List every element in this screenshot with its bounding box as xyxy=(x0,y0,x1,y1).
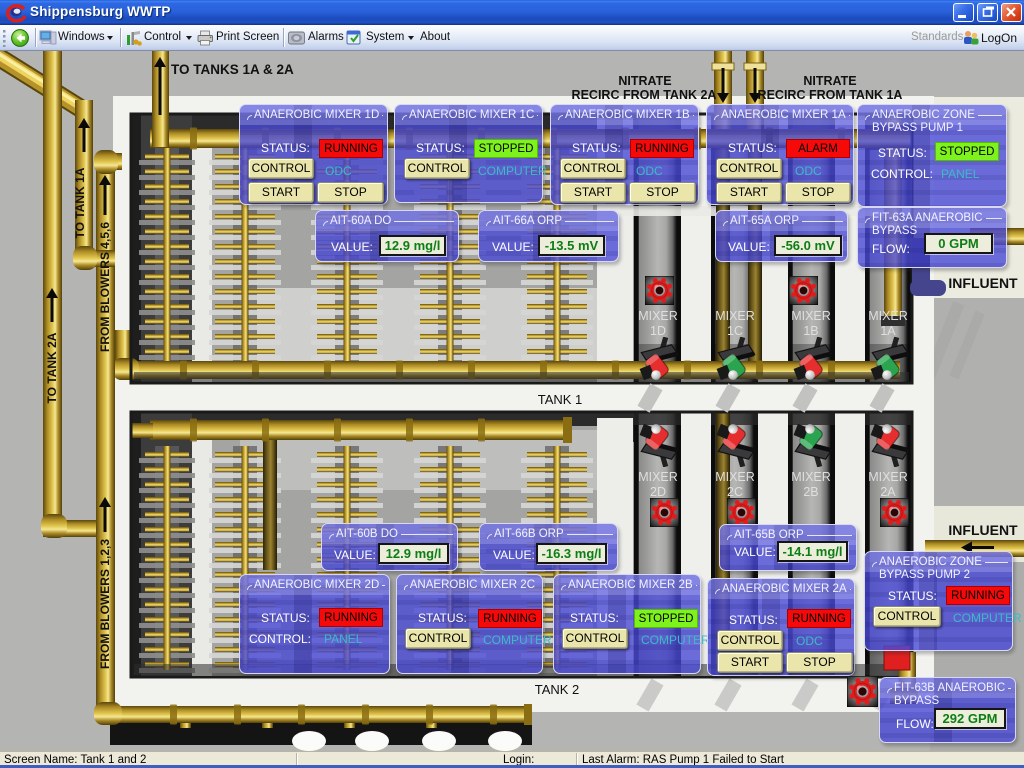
svg-text:MIXER: MIXER xyxy=(791,470,831,484)
svg-text:INFLUENT: INFLUENT xyxy=(948,522,1018,538)
svg-text:MIXER: MIXER xyxy=(715,309,755,323)
svg-text:1B: 1B xyxy=(803,324,818,338)
svg-text:TO TANK 1A: TO TANK 1A xyxy=(73,167,87,238)
svg-text:MIXER: MIXER xyxy=(868,309,908,323)
svg-text:MIXER: MIXER xyxy=(638,470,678,484)
svg-text:2D: 2D xyxy=(650,485,666,499)
svg-text:TANK 2: TANK 2 xyxy=(535,682,580,697)
svg-text:2A: 2A xyxy=(880,485,896,499)
svg-text:MIXER: MIXER xyxy=(868,470,908,484)
svg-text:NITRATE: NITRATE xyxy=(618,74,671,88)
svg-text:FROM BLOWERS 1,2,3: FROM BLOWERS 1,2,3 xyxy=(98,539,112,669)
svg-text:FROM BLOWERS 4,5,6: FROM BLOWERS 4,5,6 xyxy=(98,222,112,352)
svg-text:INFLUENT: INFLUENT xyxy=(948,275,1018,291)
svg-text:TO TANKS 1A & 2A: TO TANKS 1A & 2A xyxy=(171,62,294,77)
svg-text:RECIRC FROM TANK 1A: RECIRC FROM TANK 1A xyxy=(758,88,903,102)
svg-text:NITRATE: NITRATE xyxy=(803,74,856,88)
svg-text:2C: 2C xyxy=(727,485,743,499)
svg-text:MIXER: MIXER xyxy=(715,470,755,484)
svg-text:RECIRC FROM TANK 2A: RECIRC FROM TANK 2A xyxy=(572,88,717,102)
svg-text:1C: 1C xyxy=(727,324,743,338)
svg-text:TANK 1: TANK 1 xyxy=(538,392,583,407)
svg-text:MIXER: MIXER xyxy=(638,309,678,323)
svg-text:2B: 2B xyxy=(803,485,818,499)
svg-text:1A: 1A xyxy=(880,324,896,338)
svg-text:MIXER: MIXER xyxy=(791,309,831,323)
svg-text:TO TANK 2A: TO TANK 2A xyxy=(45,332,59,403)
svg-text:1D: 1D xyxy=(650,324,666,338)
